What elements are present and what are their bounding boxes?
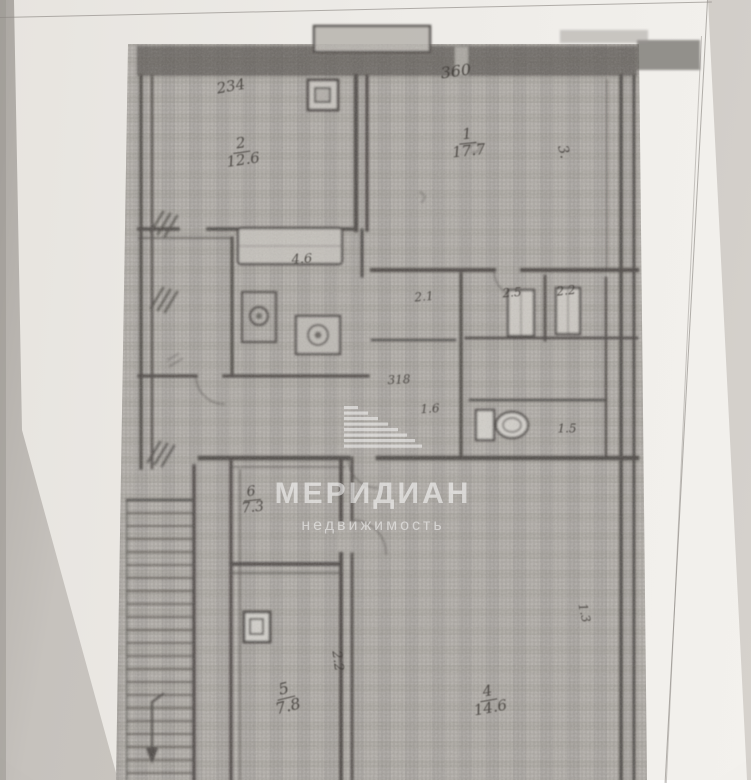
- photo-left-edge-shadow: [0, 0, 6, 780]
- paper-sheet: [0, 0, 751, 780]
- scanned-photo-background: 234212.6360117.73.4.62.12.52.23181.61.56…: [0, 0, 751, 780]
